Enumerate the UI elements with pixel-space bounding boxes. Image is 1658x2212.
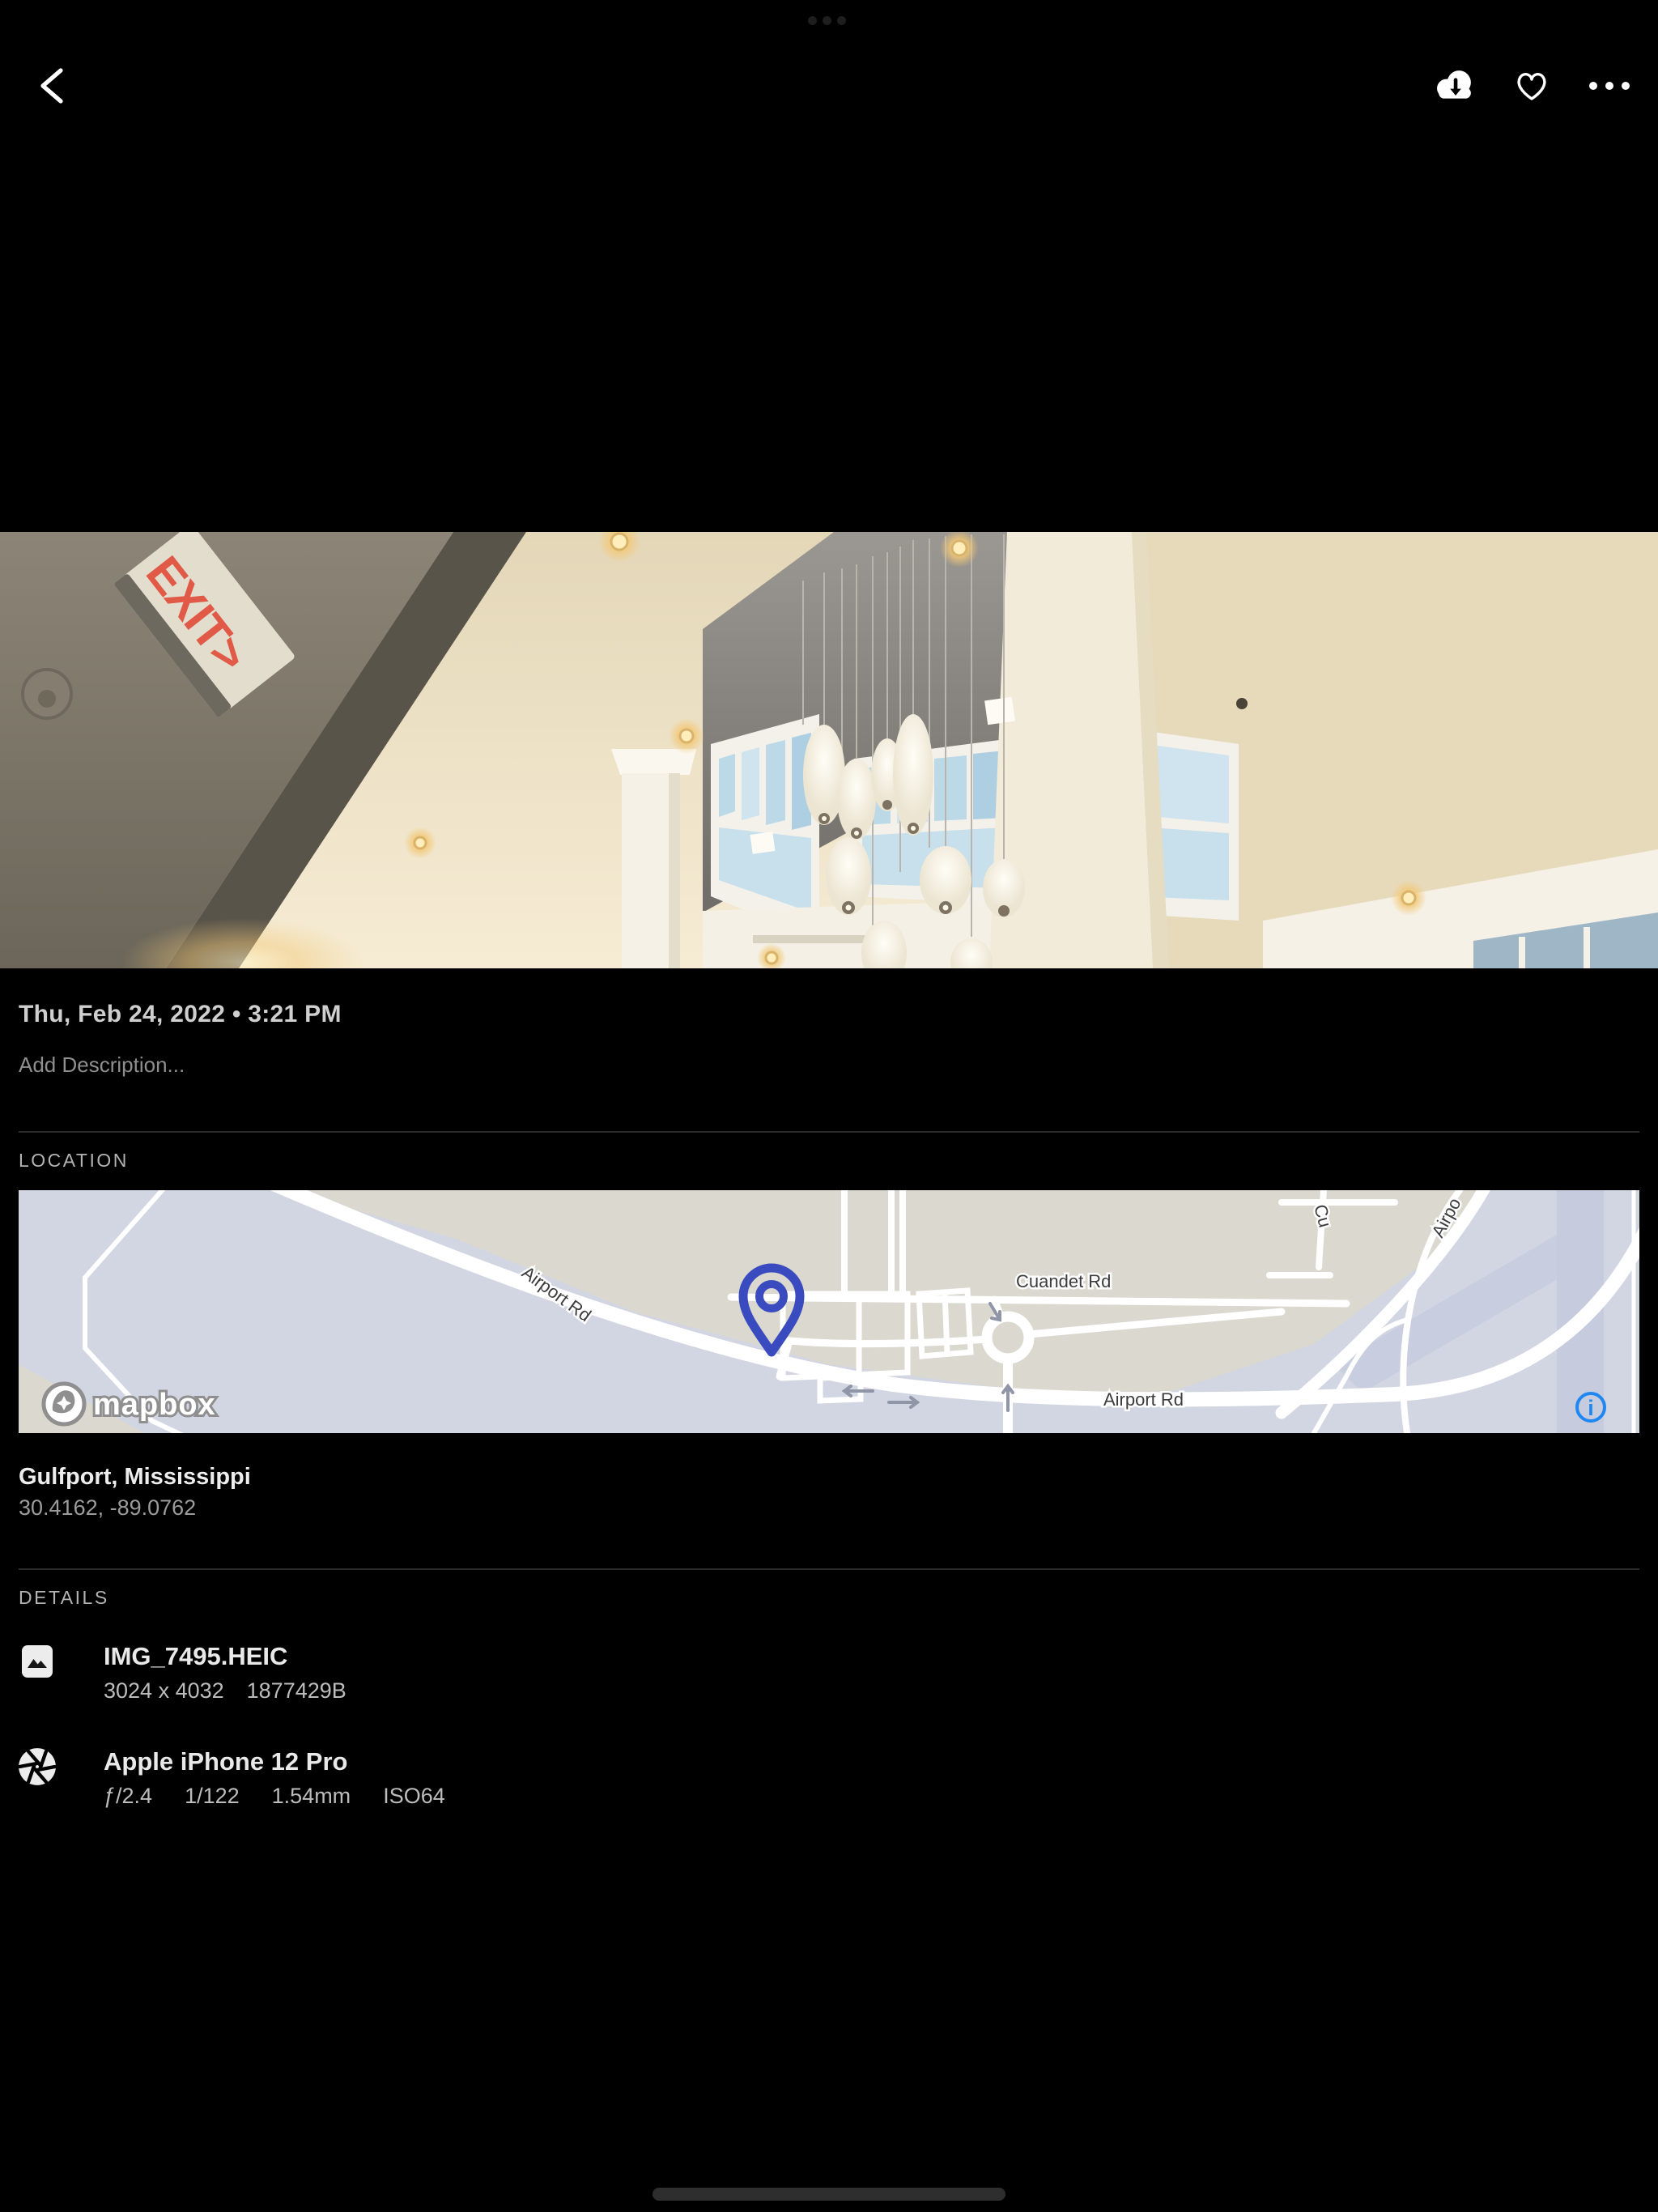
dot (837, 16, 846, 25)
image-file-icon (21, 1644, 53, 1682)
location-map[interactable]: Airport Rd Cuandet Rd Airport Rd Cu Airp… (19, 1190, 1639, 1433)
favorite-button[interactable] (1507, 63, 1556, 108)
photo-viewer[interactable]: EXIT> (0, 532, 1658, 968)
back-button[interactable] (29, 63, 74, 108)
file-size: 1877429B (247, 1678, 346, 1703)
more-options-button[interactable] (1580, 63, 1639, 108)
photo-datetime[interactable]: Thu, Feb 24, 2022 • 3:21 PM (19, 1001, 342, 1028)
photo-interior-atrium: EXIT> (0, 532, 1658, 968)
map-label-airport-rd-s: Airport Rd (1103, 1389, 1184, 1410)
exif-aperture: ƒ/2.4 (104, 1784, 152, 1808)
map-roundabout (987, 1317, 1029, 1359)
ellipsis-icon (1587, 79, 1632, 93)
map-label-cuandet-rd: Cuandet Rd (1016, 1271, 1111, 1291)
camera-name: Apple iPhone 12 Pro (104, 1747, 347, 1776)
dot (808, 16, 817, 25)
file-name: IMG_7495.HEIC (104, 1642, 287, 1671)
speaker-box (750, 832, 775, 854)
divider (19, 1131, 1639, 1133)
exif-focal-length: 1.54mm (272, 1784, 351, 1808)
mapbox-logo[interactable]: mapbox (44, 1384, 216, 1424)
heart-icon (1514, 69, 1550, 103)
cloud-download-icon (1431, 67, 1478, 104)
multitask-indicator (808, 16, 846, 25)
aperture-icon (18, 1747, 57, 1790)
dot (823, 16, 831, 25)
map-canvas: Airport Rd Cuandet Rd Airport Rd Cu Airp… (19, 1190, 1639, 1433)
file-dimensions: 3024 x 4032 (104, 1678, 224, 1703)
exif-exposure: 1/122 (185, 1784, 240, 1808)
info-icon: i (1588, 1396, 1594, 1420)
file-meta: 3024 x 40321877429B (104, 1678, 369, 1704)
location-section-header: LOCATION (19, 1150, 129, 1172)
home-indicator[interactable] (653, 2188, 1005, 2201)
exif-iso: ISO64 (383, 1784, 445, 1808)
sprinkler-dot (1236, 698, 1248, 709)
location-place: Gulfport, Mississippi (19, 1464, 251, 1491)
download-button[interactable] (1428, 63, 1482, 108)
location-coordinates: 30.4162, -89.0762 (19, 1495, 196, 1521)
chevron-left-icon (38, 66, 66, 105)
details-section-header: DETAILS (19, 1587, 109, 1609)
svg-text:mapbox: mapbox (93, 1388, 216, 1422)
divider (19, 1568, 1639, 1570)
camera-exif: ƒ/2.41/1221.54mmISO64 (104, 1784, 478, 1809)
description-placeholder[interactable]: Add Description... (19, 1053, 185, 1078)
speaker-box (984, 697, 1015, 725)
